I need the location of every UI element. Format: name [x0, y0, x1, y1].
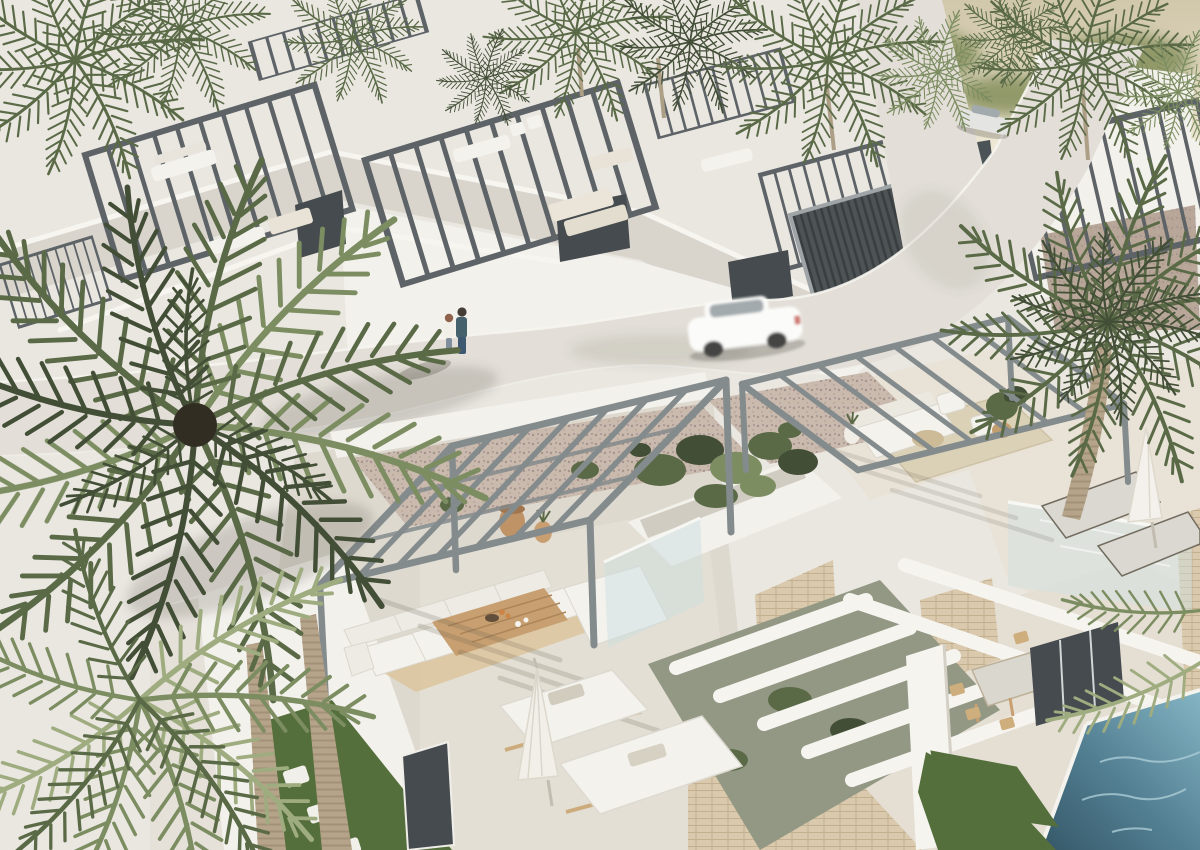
- sunlight-wash: [0, 0, 1200, 850]
- villa-render: [0, 0, 1200, 850]
